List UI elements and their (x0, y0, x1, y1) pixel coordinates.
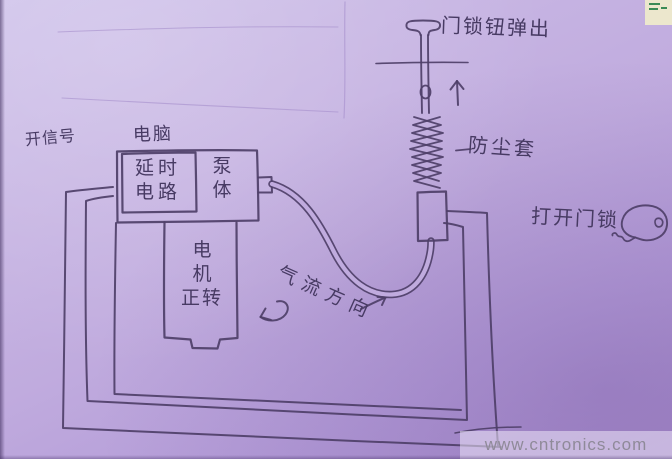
motor-label: 电 机 正转 (178, 239, 226, 310)
paper-edge-shadow-bottom (0, 455, 672, 459)
diagram-photo: 门锁钮弹出 防尘套 打开门锁 开信号 电脑 延时 电路 泵 体 电 机 正转 气… (0, 0, 672, 459)
motor-char2: 机 (192, 263, 211, 287)
rotation-arrow-icon (261, 301, 288, 320)
pump-body-char2: 体 (212, 179, 231, 203)
motor-char1: 电 (192, 239, 211, 263)
pump-body-char1: 泵 (212, 155, 231, 179)
motor-forward: 正转 (181, 287, 223, 311)
actuator-cylinder (418, 192, 448, 242)
knob-handle (406, 21, 440, 36)
paper-creases (58, 2, 521, 433)
delay-circuit-line2: 电路 (135, 181, 181, 205)
pump-body-label: 泵 体 (206, 155, 238, 203)
delay-circuit-line1: 延时 (135, 157, 181, 181)
corner-fragment-marks (645, 0, 672, 25)
lock-button-label: 门锁钮弹出 (441, 13, 552, 42)
lock-shaft (406, 21, 440, 114)
watermark-text: www.cntronics.com (485, 435, 647, 455)
delay-circuit-label: 延时 电路 (126, 157, 190, 205)
open-lock-label: 打开门锁 (530, 204, 619, 234)
bellows (410, 117, 443, 188)
paper-edge-shadow-left (0, 0, 5, 459)
up-arrow-icon (451, 81, 464, 105)
key-icon (612, 205, 667, 241)
dust-cover-label: 防尘套 (467, 133, 538, 163)
corner-image-fragment (645, 0, 672, 25)
computer-label: 电脑 (133, 123, 174, 147)
